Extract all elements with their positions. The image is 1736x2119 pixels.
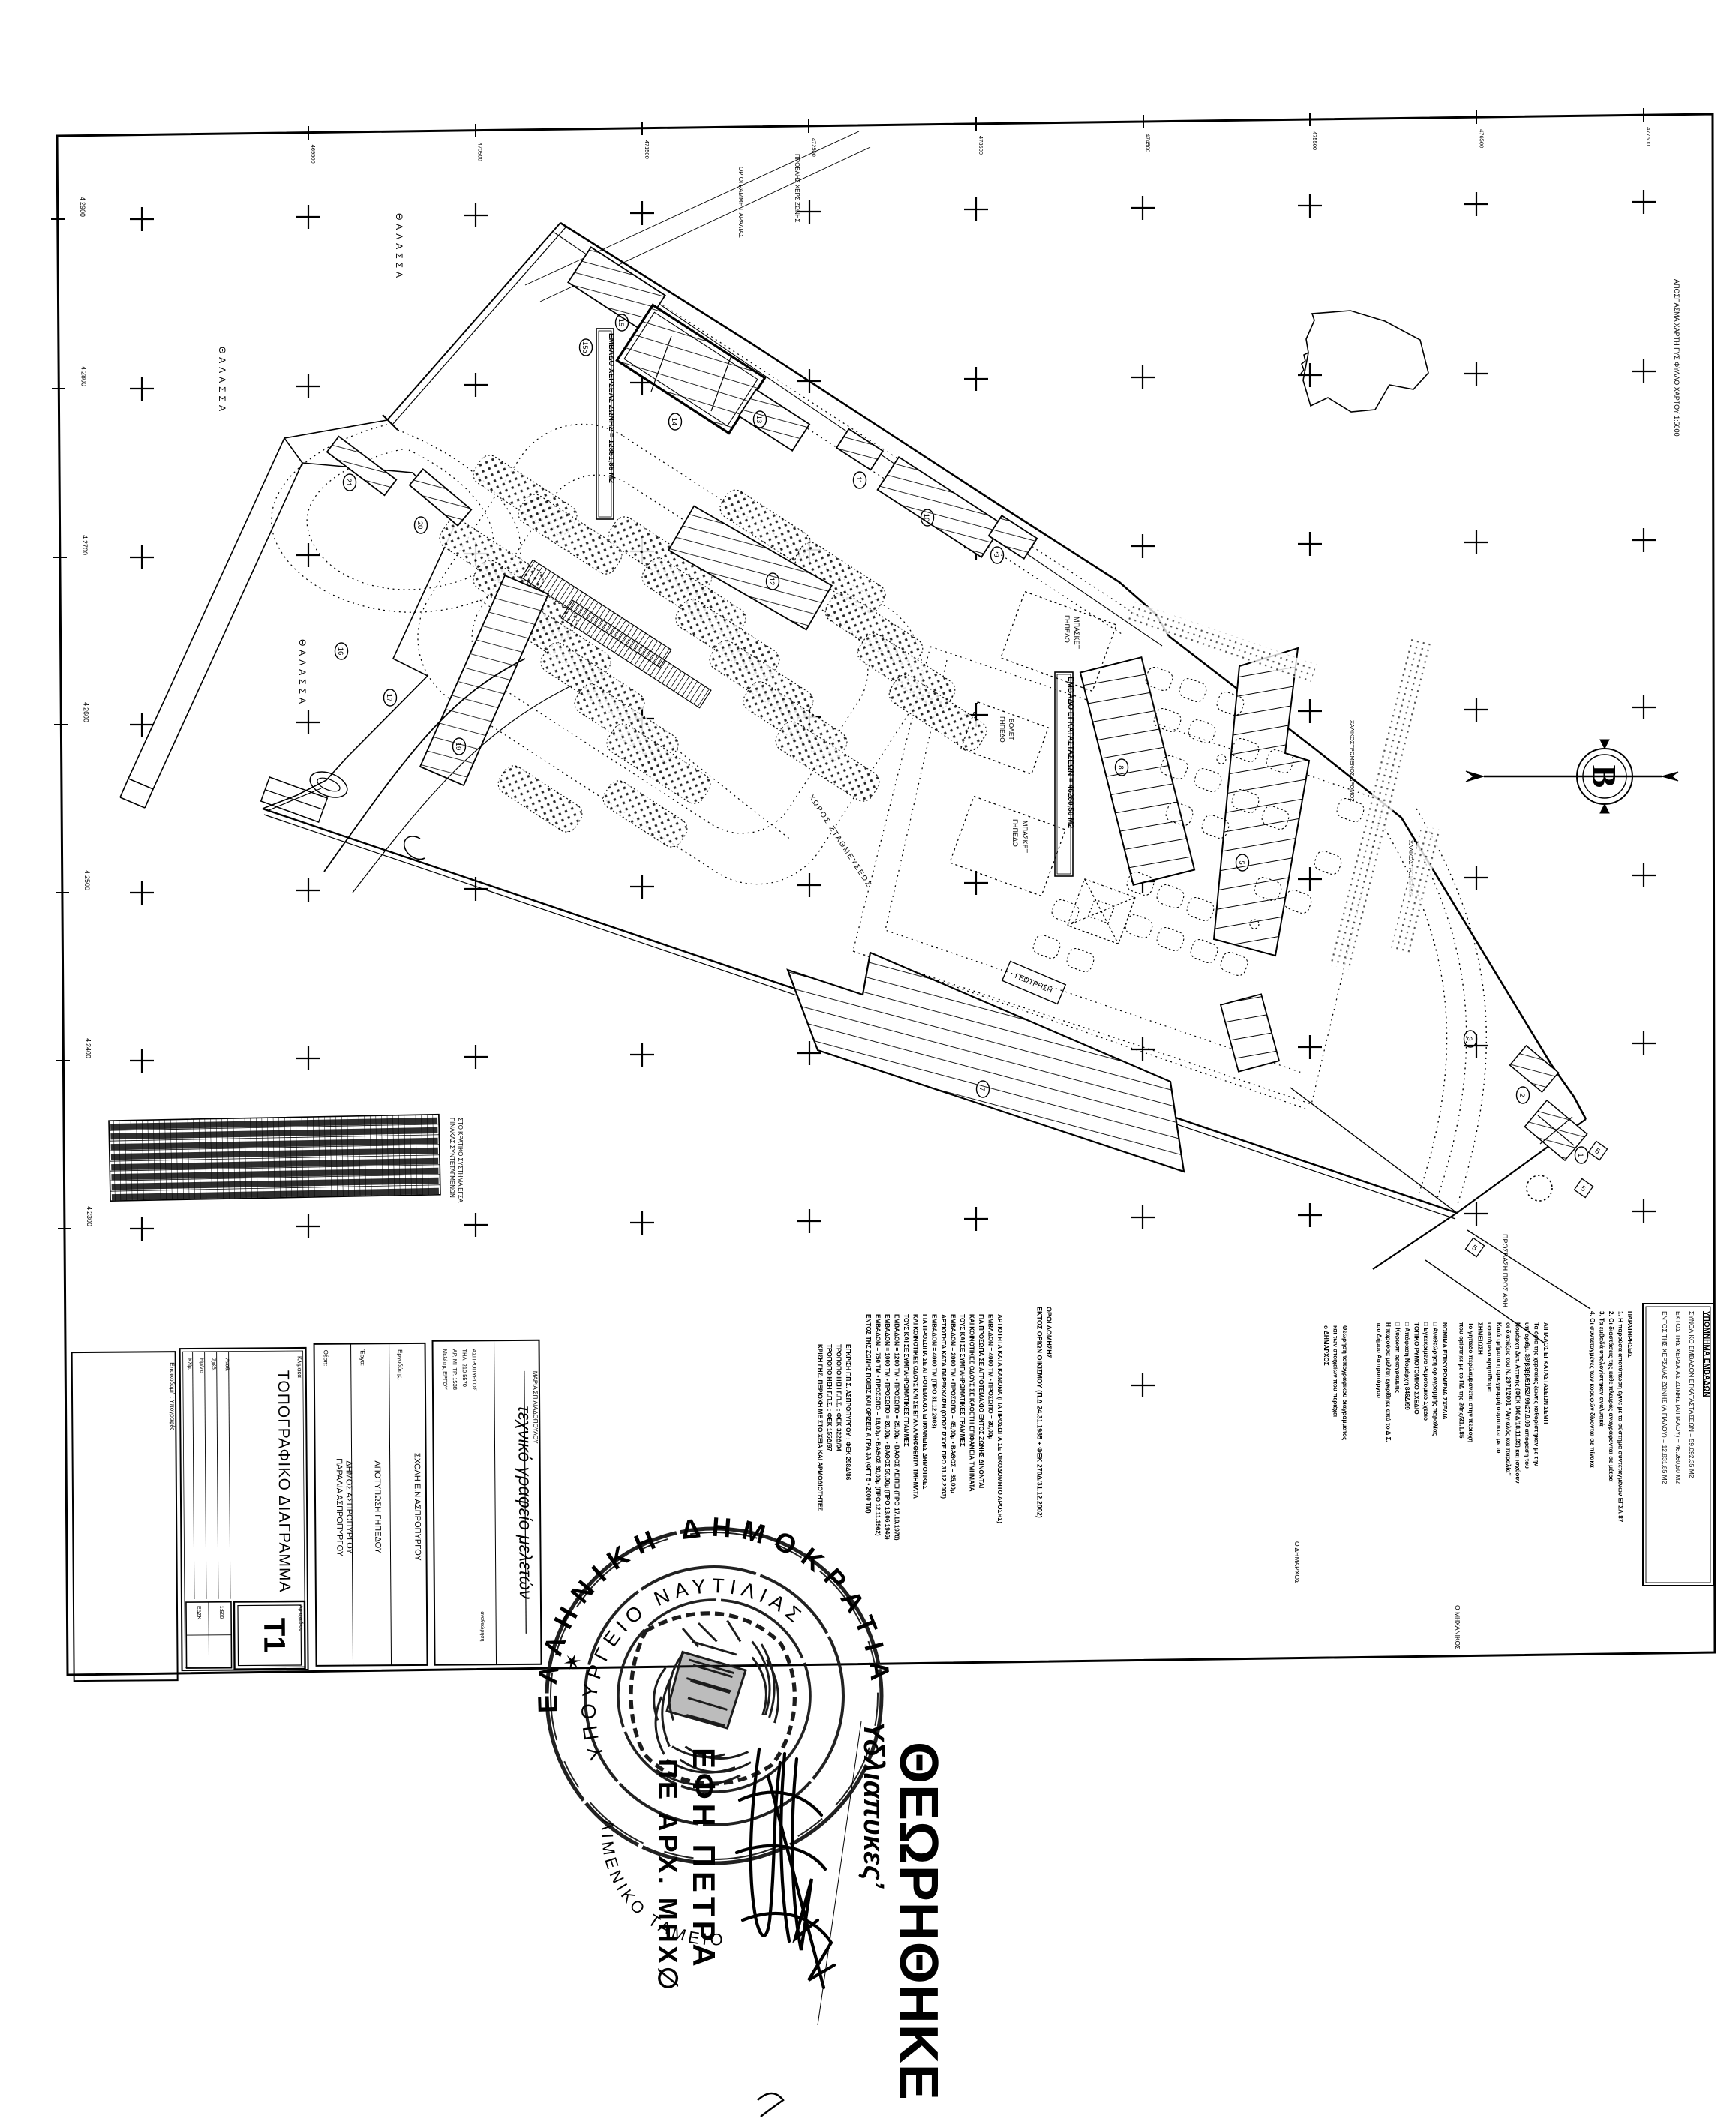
svg-text:ΑΙΓΙΑΛΟΣ ΕΓΚΑΤΑΣΤΑΣΕΩΝ ΣΕΜΠ: ΑΙΓΙΑΛΟΣ ΕΓΚΑΤΑΣΤΑΣΕΩΝ ΣΕΜΠ [1542,1322,1549,1424]
svg-text:ΓΙΑ ΠΡΟΣΩΠΑ ΣΕ ΑΓΡΟΤΕΜΑΧΙΟ ΕΝΤ: ΓΙΑ ΠΡΟΣΩΠΑ ΣΕ ΑΓΡΟΤΕΜΑΧΙΟ ΕΝΤΟΣ ΖΩΝΗΣ Δ… [978,1314,984,1488]
svg-text:Εποικοδομή : Υπογραφές: Εποικοδομή : Υπογραφές [169,1362,176,1430]
svg-text:15α: 15α [581,341,589,354]
svg-text:ΕΚΤΟΣ ΤΗΣ ΧΕΡΣΑΙΑΣ ΖΩΝΗΣ (ΑΙΓΙ: ΕΚΤΟΣ ΤΗΣ ΧΕΡΣΑΙΑΣ ΖΩΝΗΣ (ΑΙΓΙΑΛΟΥ) = 46… [1674,1311,1682,1484]
svg-text:2: 2 [1518,1093,1526,1097]
svg-text:ΤΟΥΣ ΚΑΙ ΣΕ ΣΥΜΠΛΗΡΩΜΑΤΙΚΕΣ ΓΡ: ΤΟΥΣ ΚΑΙ ΣΕ ΣΥΜΠΛΗΡΩΜΑΤΙΚΕΣ ΓΡΑΜΜΕΣ [959,1314,966,1447]
svg-text:Θεώρηση τοπογραφικού διαγράμμα: Θεώρηση τοπογραφικού διαγράμματος [1341,1325,1348,1440]
svg-text:ΒΟΛΕΤ: ΒΟΛΕΤ [1008,719,1015,740]
svg-text:ΓΗΠΕΔΟ: ΓΗΠΕΔΟ [999,716,1006,743]
svg-text:ΕΜΒΑΔΟΝ = 2000 ΤΜ • ΠΡΟΣΩΠΟ =: ΕΜΒΑΔΟΝ = 2000 ΤΜ • ΠΡΟΣΩΠΟ = 45,00μ • Β… [950,1314,957,1493]
svg-text:473500: 473500 [978,136,984,155]
svg-text:472500: 472500 [811,138,818,157]
svg-text:ΑΠΟΤΥΠΩΣΗ ΓΗΠΕΔΟΥ: ΑΠΟΤΥΠΩΣΗ ΓΗΠΕΔΟΥ [373,1460,383,1554]
svg-text:Το γήπεδο περιλαμβάνεται στην: Το γήπεδο περιλαμβάνεται στην περιοχή [1467,1322,1474,1442]
svg-text:ΕΜΒΑΔΟΝ = 1200 ΤΜ • ΠΡΟΣΩΠΟ =: ΕΜΒΑΔΟΝ = 1200 ΤΜ • ΠΡΟΣΩΠΟ = 25,00μ • Β… [894,1314,900,1541]
svg-text:Κατά τμήματα η οριογραμμή συμπ: Κατά τμήματα η οριογραμμή συμπίπτει με τ… [1496,1322,1503,1453]
svg-text:ΑΡΤΙΟΤΗΤΑ ΚΑΤΑ ΠΑΡΕΚΚΛΙΣΗ (ΟΠΩ: ΑΡΤΙΟΤΗΤΑ ΚΑΤΑ ΠΑΡΕΚΚΛΙΣΗ (ΟΠΩΣ ΙΣΧΥΕ ΠΡ… [940,1314,947,1499]
svg-text:477500: 477500 [1645,127,1652,146]
svg-text:ΕΝΤΟΣ ΤΗΣ ΖΩΝΗΣ ΠΟΙΕΙΣ ΚΑΙ ΟΡΙ: ΕΝΤΟΣ ΤΗΣ ΖΩΝΗΣ ΠΟΙΕΙΣ ΚΑΙ ΟΡΙΖΕΙΣ Α ΓΡΑ… [865,1314,872,1514]
svg-text:19: 19 [454,743,462,751]
svg-text:ΘΑΛΑΣΣΑ: ΘΑΛΑΣΣΑ [217,347,227,415]
svg-text:ΚΑΙ ΚΟΙΝΟΤΙΚΕΣ ΟΔΟΥΣ ΚΑΙ ΣΕ ΕΠ: ΚΑΙ ΚΟΙΝΟΤΙΚΕΣ ΟΔΟΥΣ ΚΑΙ ΣΕ ΕΠΑΝΑΛΗΦΘΕΝΤ… [912,1314,919,1499]
svg-text:ΕΝΤΟΣ ΤΗΣ ΧΕΡΣΑΙΑΣ ΖΩΝΗΣ (ΑΙΓΙ: ΕΝΤΟΣ ΤΗΣ ΧΕΡΣΑΙΑΣ ΖΩΝΗΣ (ΑΙΓΙΑΛΟΥ) = 12… [1661,1311,1668,1484]
svg-text:υφιστάμενο κρηπίδωμα: υφιστάμενο κρηπίδωμα [1486,1322,1493,1392]
svg-text:476500: 476500 [1479,129,1485,148]
svg-text:ΠΡΟΣΒΑΣΗ ΠΡΟΣ ΑΘΗ: ΠΡΟΣΒΑΣΗ ΠΡΟΣ ΑΘΗ [1501,1234,1509,1307]
svg-text:4 2500: 4 2500 [83,870,91,890]
svg-text:20: 20 [416,521,424,530]
svg-text:ΠΑΡΑΛΙΑ ΑΣΠΡΟΠΥΡΓΟΥ: ΠΑΡΑΛΙΑ ΑΣΠΡΟΠΥΡΓΟΥ [335,1458,344,1557]
svg-text:ΤΟΠΙΚΟ ΡΥΜΟΤΟΜΙΚΟ ΣΧΕΔΙΟ: ΤΟΠΙΚΟ ΡΥΜΟΤΟΜΙΚΟ ΣΧΕΔΙΟ [1413,1322,1420,1415]
svg-text:ΑΡ. ΜΗΤΡ. 1538: ΑΡ. ΜΗΤΡ. 1538 [452,1349,458,1390]
svg-text:10: 10 [922,514,930,522]
svg-text:ΣΥΝΟΛΙΚΟ ΕΜΒΑΔΟΝ ΕΓΚΑΤΑΣΤΑΣΕΩΝ: ΣΥΝΟΛΙΚΟ ΕΜΒΑΔΟΝ ΕΓΚΑΤΑΣΤΑΣΕΩΝ = 59.092,… [1688,1311,1695,1478]
svg-text:ΤΟΥΣ ΚΑΙ ΣΕ ΣΥΜΠΛΗΡΩΜΑΤΙΚΕΣ ΓΡ: ΤΟΥΣ ΚΑΙ ΣΕ ΣΥΜΠΛΗΡΩΜΑΤΙΚΕΣ ΓΡΑΜΜΕΣ [903,1314,909,1447]
svg-text:ΣΧΟΛΗ Ε.Ν ΑΣΠΡΟΠΥΡΓΟΥ: ΣΧΟΛΗ Ε.Ν ΑΣΠΡΟΠΥΡΓΟΥ [413,1453,422,1562]
svg-text:16: 16 [336,647,344,656]
svg-text:5: 5 [1237,860,1245,864]
svg-text:που ορίστηκε με το ΠΔ της 24ης: που ορίστηκε με το ΠΔ της 24ης/31.1.85 [1458,1322,1465,1439]
svg-text:ΚΡΙΣΗ ΓΗΣ: ΠΕΡΙΟΧΗ ΜΕ ΣΤΟΙΧΕΙΑ: ΚΡΙΣΗ ΓΗΣ: ΠΕΡΙΟΧΗ ΜΕ ΣΤΟΙΧΕΙΑ ΚΑΙ ΑΡΜΟΔ… [817,1344,824,1511]
svg-text:Εργοδότης:: Εργοδότης: [397,1349,404,1380]
svg-text:Κλίμ.: Κλίμ. [187,1358,193,1370]
svg-text:1:500: 1:500 [218,1606,224,1619]
svg-text:Ο ΜΗΧΑΝΙΚΟΣ: Ο ΜΗΧΑΝΙΚΟΣ [1454,1605,1461,1649]
svg-text:ΠΡΟΒΛΗΣ ΧΕΡΣ ΖΩΝΗΣ: ΠΡΟΒΛΗΣ ΧΕΡΣ ΖΩΝΗΣ [794,154,800,223]
svg-text:ΠΕ ΑΡΧ. ΜΗΧ∅: ΠΕ ΑΡΧ. ΜΗΧ∅ [653,1759,683,1993]
svg-text:ΓΗΠΕΔΟ: ΓΗΠΕΔΟ [1011,819,1019,847]
svg-text:Υδλιαπυκες’: Υδλιαπυκες’ [857,1721,889,1889]
svg-text:Έργο:: Έργο: [359,1349,366,1366]
svg-text:475500: 475500 [1311,131,1318,150]
svg-text:ΘΕΩΡΗΘΗΚΕ: ΘΕΩΡΗΘΗΚΕ [888,1742,948,2101]
svg-text:3: 3 [1465,1037,1473,1040]
svg-text:ΤΟΠΟΓΡΑΦΙΚΟ ΔΙΑΓΡΑΜΜΑ: ΤΟΠΟΓΡΑΦΙΚΟ ΔΙΑΓΡΑΜΜΑ [275,1370,293,1593]
svg-text:και των στοιχείων που περιέχει: και των στοιχείων που περιέχει [1332,1325,1339,1417]
svg-text:ΓΙΑ ΠΡΟΣΩΠΑ ΣΕ ΑΓΡΟΤΕΜΑΧΙΑ ΕΠΙ: ΓΙΑ ΠΡΟΣΩΠΑ ΣΕ ΑΓΡΟΤΕΜΑΧΙΑ ΕΠΙΦΑΝΕΙΕΣ ΔΗ… [921,1314,928,1490]
svg-text:471500: 471500 [644,140,650,159]
svg-text:ΥΠΟΜΝΗΜΑ ΕΜΒΑΔΩΝ: ΥΠΟΜΝΗΜΑ ΕΜΒΑΔΩΝ [1702,1311,1710,1397]
svg-text:Ο ΔΗΜΑΡΧΟΣ: Ο ΔΗΜΑΡΧΟΣ [1293,1541,1301,1583]
svg-text:ΟΡΟΙ ΔΟΜΗΣΗΣ: ΟΡΟΙ ΔΟΜΗΣΗΣ [1045,1307,1053,1359]
svg-text:Σχέδ.: Σχέδ. [211,1358,217,1371]
svg-text:3. Τα εμβαδά υπολογίστηκαν αν: 3. Τα εμβαδά υπολογίστηκαν αναλυτικά [1599,1311,1605,1427]
svg-text:4 2600: 4 2600 [82,702,89,722]
svg-text:του Δήμου Ασπροπύργου: του Δήμου Ασπροπύργου [1376,1322,1383,1398]
svg-text:ΘΑΛΑΣΣΑ: ΘΑΛΑΣΣΑ [297,639,308,707]
svg-text:□ Εγκεκριμένο Ρυμοτομικό Σχέδ: □ Εγκεκριμένο Ρυμοτομικό Σχέδιο [1422,1322,1429,1421]
svg-text:470500: 470500 [477,143,484,161]
svg-text:8: 8 [1116,765,1125,769]
svg-text:B: B [1585,765,1623,788]
svg-text:Η παρούσα μελέτη εγκρίθηκε από: Η παρούσα μελέτη εγκρίθηκε από το Δ.Σ. [1385,1322,1392,1442]
svg-text:ΕΦΗ ΠΕΤΡΑ: ΕΦΗ ΠΕΤΡΑ [686,1748,722,1971]
svg-text:ΕΜΒΑΔΟ ΕΓΚΑΤΑΣΤΑΣΕΩΝ = 46280,5: ΕΜΒΑΔΟ ΕΓΚΑΤΑΣΤΑΣΕΩΝ = 46280,50 Μ2 [1066,677,1074,829]
svg-text:Κλίμακα: Κλίμακα [296,1356,303,1378]
svg-text:υπ’ αριθμ. 3β/ββββ/51/52/’99/2: υπ’ αριθμ. 3β/ββββ/51/52/’99/27.9.99 από… [1524,1322,1530,1469]
svg-text:13: 13 [755,416,763,424]
svg-text:1: 1 [1576,1153,1584,1157]
svg-text:4 2800: 4 2800 [80,366,87,386]
svg-text:4 2900: 4 2900 [79,197,86,217]
svg-text:ΕΔΣΚ: ΕΔΣΚ [196,1606,201,1620]
svg-text:4 2700: 4 2700 [81,535,89,555]
svg-text:□ Απόφαση Νομάρχη 846Δ/99: □ Απόφαση Νομάρχη 846Δ/99 [1404,1322,1410,1410]
svg-text:αναθεώρηση: αναθεώρηση [479,1611,485,1641]
svg-text:ΕΜΒΑΔΟΝ = 4000 ΤΜ • ΠΡΟΣΩΠΟ =: ΕΜΒΑΔΟΝ = 4000 ΤΜ • ΠΡΟΣΩΠΟ = 30,00μ [987,1314,994,1439]
svg-text:ΕΜΒΑΔΟΝ = 4000 ΤΜ (ΠΡΟ 31.12.2: ΕΜΒΑΔΟΝ = 4000 ΤΜ (ΠΡΟ 31.12.2003) [931,1314,938,1429]
svg-text:1. Η παρούσα αποτύπωση έγινε: 1. Η παρούσα αποτύπωση έγινε με το σύστη… [1617,1311,1624,1523]
svg-text:ΠΑΡΑΤΗΡΗΣΕΙΣ: ΠΑΡΑΤΗΡΗΣΕΙΣ [1626,1311,1633,1358]
svg-text:ΓΗΠΕΔΟ: ΓΗΠΕΔΟ [1063,615,1071,643]
svg-text:ΠΙΝΑΚΑΣ ΣΥΝΤΕΤΑΓΜΕΝΩΝ: ΠΙΝΑΚΑΣ ΣΥΝΤΕΤΑΓΜΕΝΩΝ [449,1118,455,1198]
svg-text:9: 9 [992,553,1000,557]
svg-text:ο ΔΗΜΑΡΧΟΣ: ο ΔΗΜΑΡΧΟΣ [1323,1325,1329,1366]
svg-text:ΤΡΟΠΟΠΟΙΗΣΗ Γ.Π.Σ. :: ΤΡΟΠΟΠΟΙΗΣΗ Γ.Π.Σ. : ΦΕΚ 322Δ/94 [836,1344,842,1451]
svg-text:ΚΑΙ ΚΟΙΝΟΤΙΚΕΣ ΟΔΟΥΣ ΣΕ ΚΑΘΕΤΗ: ΚΑΙ ΚΟΙΝΟΤΙΚΕΣ ΟΔΟΥΣ ΣΕ ΚΑΘΕΤΗ ΕΠΙΦΑΝΕΙΑ… [969,1314,975,1492]
svg-text:ΕΜΒΑΔΟ ΧΕΡΣΕΑΣ ΖΩΝΗΣ = 12851,8: ΕΜΒΑΔΟ ΧΕΡΣΕΑΣ ΖΩΝΗΣ = 12851,85 Μ2 [607,333,615,483]
svg-text:Μελέτης ΕΡΓΟΥ: Μελέτης ΕΡΓΟΥ [442,1349,449,1390]
svg-text:7: 7 [978,1087,986,1091]
svg-text:οι διατάξεις του Ν. 2971/2001: οι διατάξεις του Ν. 2971/2001 “Αιγιαλός … [1505,1322,1512,1476]
svg-text:ΣΗΜΕΙΩΣΗ: ΣΗΜΕΙΩΣΗ [1477,1322,1484,1355]
svg-text:ΑΡΤΙΟΤΗΤΑ ΚΑΤΑ ΚΑΝΟΝΑ (ΓΙΑ ΠΡΟ: ΑΡΤΙΟΤΗΤΑ ΚΑΤΑ ΚΑΝΟΝΑ (ΓΙΑ ΠΡΟΣΩΠΑ ΣΕ ΟΙ… [996,1314,1003,1523]
svg-text:Αναθ.: Αναθ. [224,1358,230,1372]
svg-text:Τ1: Τ1 [257,1618,290,1653]
svg-text:ΟΡΙΟΓΡΑΜΜΗ ΠΑΡΑΛΙΑΣ: ΟΡΙΟΓΡΑΜΜΗ ΠΑΡΑΛΙΑΣ [737,167,744,238]
svg-text:Τα όρια της χερσαίας ζώνης καθ: Τα όρια της χερσαίας ζώνης καθορίστηκαν … [1533,1322,1540,1466]
svg-text:□ Αναθεώρηση οριογραμμής παρα: □ Αναθεώρηση οριογραμμής παραλίας [1432,1322,1439,1436]
svg-text:ΘΑΛΑΣΣΑ: ΘΑΛΑΣΣΑ [394,213,404,281]
svg-text:ΜΠΑΣΚΕΤ: ΜΠΑΣΚΕΤ [1073,617,1080,650]
svg-text:ΔΗΜΟΣ ΑΣΠΡΟΠΥΡΓΟΥ: ΔΗΜΟΣ ΑΣΠΡΟΠΥΡΓΟΥ [344,1460,354,1554]
svg-text:ΣΤΟ ΚΡΑΤΙΚΟ ΣΥΣΤΗΜΑ ΕΓΣΑ: ΣΤΟ ΚΡΑΤΙΚΟ ΣΥΣΤΗΜΑ ΕΓΣΑ [457,1118,464,1203]
svg-text:Νομάρχη Δυτ. Αττικής (ΦΕΚ 846Δ: Νομάρχη Δυτ. Αττικής (ΦΕΚ 846Δ/18.11.99)… [1515,1322,1521,1484]
svg-text:ΜΠΑΣΚΕΤ: ΜΠΑΣΚΕΤ [1021,821,1029,854]
svg-text:ΤΡΟΠΟΠΟΙΗΣΗ Γ.Π.Σ. :: ΤΡΟΠΟΠΟΙΗΣΗ Γ.Π.Σ. : ΦΕΚ 155Δ/97 [826,1344,833,1451]
svg-text:474500: 474500 [1145,134,1152,152]
svg-text:ΝΟΜΙΜΑ ΕΠΙΚΥΡΩΜΕΝΑ ΣΧΕΔΙΑ: ΝΟΜΙΜΑ ΕΠΙΚΥΡΩΜΕΝΑ ΣΧΕΔΙΑ [1441,1322,1448,1420]
svg-text:12: 12 [767,578,776,586]
svg-text:11: 11 [854,476,863,484]
svg-text:ΜΑΡΙΑ ΣΠΙΛΙΑΔΟΠΟΥΛΟΥ: ΜΑΡΙΑ ΣΠΙΛΙΑΔΟΠΟΥΛΟΥ [532,1371,539,1445]
svg-text:14: 14 [670,418,678,426]
svg-text:Ημ/νία: Ημ/νία [199,1358,205,1373]
svg-text:ΕΓΚΡΙΣΗ Γ.Π.Σ. ΑΣΠΡΟΠΥΡΓΟΥ :: ΕΓΚΡΙΣΗ Γ.Π.Σ. ΑΣΠΡΟΠΥΡΓΟΥ : ΦΕΚ 298Δ/86 [845,1344,851,1481]
svg-text:4 2300: 4 2300 [86,1206,93,1226]
svg-text:ΕΚΤΟΣ ΟΡΙΩΝ ΟΙΚΙΣΜΟΥ (Π.Δ 24.3: ΕΚΤΟΣ ΟΡΙΩΝ ΟΙΚΙΣΜΟΥ (Π.Δ 24.31.1985 + Φ… [1036,1307,1044,1518]
svg-text:2. Οι διαστάσεις της κάθε πλε: 2. Οι διαστάσεις της κάθε πλευράς αναγρά… [1608,1311,1614,1481]
svg-text:ΤΗΛ. 210 5570: ΤΗΛ. 210 5570 [461,1349,468,1387]
svg-text:15: 15 [617,319,625,327]
svg-text:ΧΑΛΙΚΟΣΤΡΩΜΕΝΟΣ ΔΡΟΜΟΣ: ΧΑΛΙΚΟΣΤΡΩΜΕΝΟΣ ΔΡΟΜΟΣ [1349,720,1356,802]
svg-text:ΑΠΟΣΠΑΣΜΑ ΧΑΡΤΗ ΓΥΣ ΦΥΛΛΟ ΧΑΡΤ: ΑΠΟΣΠΑΣΜΑ ΧΑΡΤΗ ΓΥΣ ΦΥΛΛΟ ΧΑΡΤΟΥ 1:5000 [1673,279,1680,437]
svg-text:17: 17 [385,694,393,702]
svg-text:ΕΜΒΑΔΟΝ = 750 ΤΜ • ΠΡΟΣΩΠΟ = 1: ΕΜΒΑΔΟΝ = 750 ΤΜ • ΠΡΟΣΩΠΟ = 16,00μ • ΒΑ… [875,1314,882,1536]
svg-text:ΑΣΠΡΟΠΥΡΓΟΣ: ΑΣΠΡΟΠΥΡΓΟΣ [471,1349,478,1391]
svg-text:□ Κύρωση οριογραμμής: □ Κύρωση οριογραμμής [1395,1322,1401,1393]
svg-text:21: 21 [344,479,353,487]
svg-text:ΕΜΒΑΔΟΝ = 1000 ΤΜ • ΠΡΟΣΩΠΟ =: ΕΜΒΑΔΟΝ = 1000 ΤΜ • ΠΡΟΣΩΠΟ = 20,00μ • Β… [884,1314,891,1540]
svg-text:Αρ σχεδίου: Αρ σχεδίου [298,1605,304,1631]
svg-text:469500: 469500 [310,145,317,164]
svg-text:Θέση:: Θέση: [323,1350,329,1366]
svg-text:4 2400: 4 2400 [84,1038,92,1058]
svg-text:4. Οι συντεταγμένες των κορυφ: 4. Οι συντεταγμένες των κορυφών δίνονται… [1589,1311,1596,1468]
